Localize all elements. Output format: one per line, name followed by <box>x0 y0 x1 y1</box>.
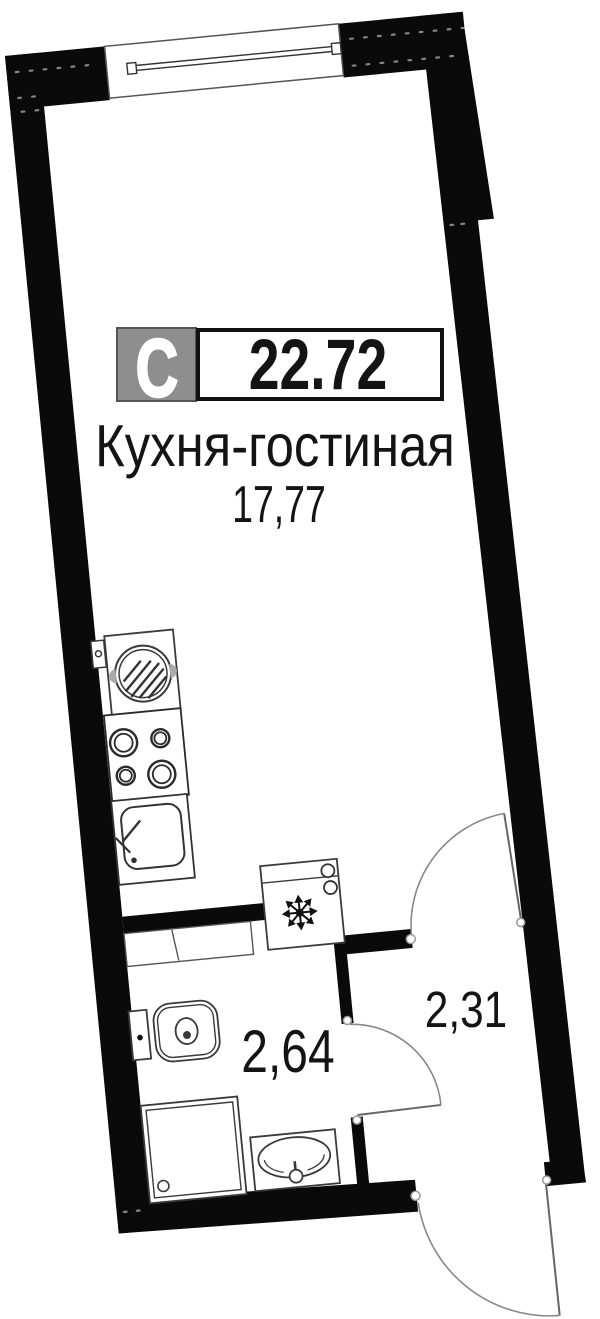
svg-text:22.72: 22.72 <box>249 325 388 404</box>
svg-text:2,64: 2,64 <box>241 1018 334 1085</box>
svg-text:Кухня-гостиная: Кухня-гостиная <box>95 412 455 478</box>
svg-text:2,31: 2,31 <box>425 981 507 1038</box>
svg-text:17,77: 17,77 <box>232 475 326 534</box>
svg-text:С: С <box>136 323 179 415</box>
